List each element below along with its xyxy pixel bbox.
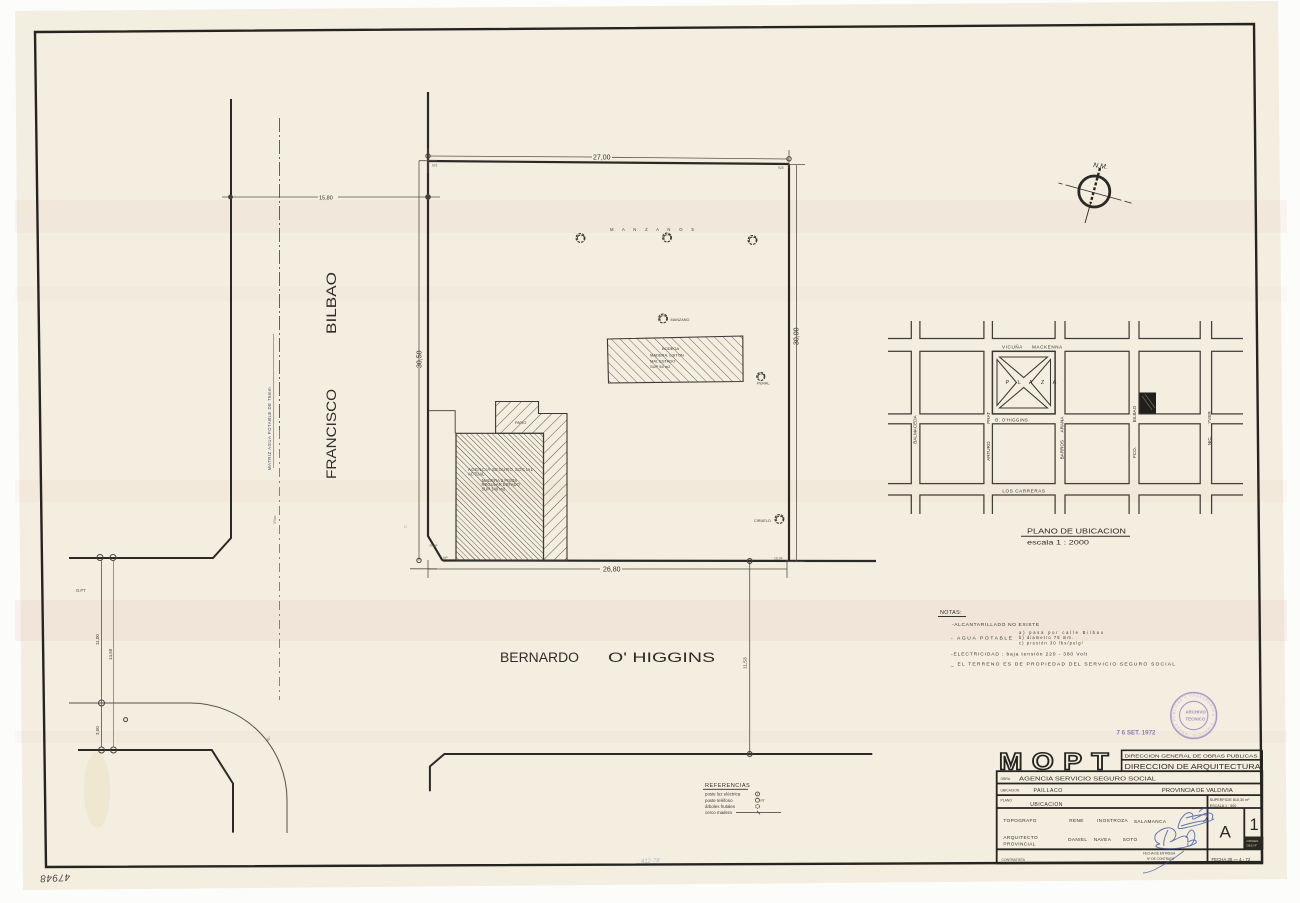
svg-text:CONTRATISTA: CONTRATISTA xyxy=(1002,858,1026,862)
svg-text:ORIGEN: ORIGEN xyxy=(1247,839,1259,843)
svg-text:AGENCIA SERVICIO SEGURO: AGENCIA SERVICIO SEGURO SOCIAL xyxy=(1019,777,1156,783)
svg-text:ARANA: ARANA xyxy=(1060,416,1065,433)
svg-text:SOTO: SOTO xyxy=(1123,837,1138,842)
svg-text:REFERENCIAS: REFERENCIAS xyxy=(705,783,750,789)
svg-text:BALMACEDA: BALMACEDA xyxy=(913,414,918,443)
svg-text:poste teléfono: poste teléfono xyxy=(705,798,733,803)
svg-text:15,80: 15,80 xyxy=(319,196,333,202)
svg-text:BILBAO: BILBAO xyxy=(1132,405,1137,422)
svg-text:R.OF: R.OF xyxy=(430,544,438,548)
svg-text:PATIO: PATIO xyxy=(515,420,526,425)
svg-text:FECHA 30 — 4 - 72: FECHA 30 — 4 - 72 xyxy=(1212,857,1251,862)
svg-text:BODEGA: BODEGA xyxy=(662,346,679,351)
svg-text:926: 926 xyxy=(778,166,784,170)
svg-text:ARCHIVO: ARCHIVO xyxy=(1186,710,1207,715)
svg-text:P L A Z A: P L A Z A xyxy=(1006,380,1060,386)
svg-text:FECHA DE ENTREGA: FECHA DE ENTREGA xyxy=(1143,852,1176,856)
svg-text:cerco madera: cerco madera xyxy=(705,810,732,815)
svg-text:FCO.: FCO. xyxy=(1132,447,1137,458)
svg-text:16,04: 16,04 xyxy=(774,557,783,561)
svg-text:c) presión 30 lbs/pulg²: c) presión 30 lbs/pulg² xyxy=(1019,640,1084,645)
svg-text:MAL ESTADO: MAL ESTADO xyxy=(650,359,675,364)
svg-text:ESCALA 1 : 500: ESCALA 1 : 500 xyxy=(1210,804,1237,808)
svg-text:PRAT: PRAT xyxy=(986,412,991,424)
svg-text:PAILLACO: PAILLACO xyxy=(1034,788,1063,794)
svg-text:MACKENNA: MACKENNA xyxy=(1032,345,1063,350)
svg-text:árboles frutales: árboles frutales xyxy=(705,804,736,809)
svg-text:3,50: 3,50 xyxy=(95,726,100,735)
svg-text:DANIEL: DANIEL xyxy=(1068,837,1087,842)
svg-text:11,53: 11,53 xyxy=(743,657,749,669)
svg-text:ARTURO: ARTURO xyxy=(986,441,991,461)
svg-text:PLANO: PLANO xyxy=(1001,799,1013,803)
svg-text:PROVINCIAL: PROVINCIAL xyxy=(1003,841,1035,846)
svg-text:YVER: YVER xyxy=(1207,411,1212,424)
svg-text:27,00: 27,00 xyxy=(593,155,611,162)
svg-text:BERNARDO: BERNARDO xyxy=(500,650,579,665)
svg-text:PERAL: PERAL xyxy=(757,382,769,386)
svg-text:-ALCANTARILLADO NO EXIST: -ALCANTARILLADO NO EXISTE xyxy=(952,622,1040,628)
svg-text:3°/oo: 3°/oo xyxy=(273,516,277,524)
svg-text:MATRIZ AGUA POTABLE DE: MATRIZ AGUA POTABLE DE 75mm xyxy=(267,387,272,470)
svg-text:OBRA: OBRA xyxy=(1001,777,1011,781)
svg-text:1: 1 xyxy=(1250,816,1259,834)
svg-text:30,00: 30,00 xyxy=(794,327,801,345)
svg-text:LOS CARRERAS: LOS CARRERAS xyxy=(1002,489,1045,494)
svg-text:_ EL TERRENO ES DE PROP: _ EL TERRENO ES DE PROPIEDAD DEL SERVICI… xyxy=(950,662,1175,668)
svg-text:BILBAO: BILBAO xyxy=(323,272,339,334)
svg-text:TOPOGRAFO: TOPOGRAFO xyxy=(1003,818,1036,823)
svg-text:INOSTROZA: INOSTROZA xyxy=(1097,818,1128,823)
svg-text:14,50: 14,50 xyxy=(108,648,113,660)
svg-text:FRANCISCO: FRANCISCO xyxy=(323,389,339,479)
svg-text:30,50: 30,50 xyxy=(417,350,424,368)
svg-text:MADERA, LISTON: MADERA, LISTON xyxy=(650,353,684,358)
svg-text:O.PT: O.PT xyxy=(76,588,86,593)
svg-text:SUP 54 m2: SUP 54 m2 xyxy=(650,364,671,369)
svg-text:MANZANO: MANZANO xyxy=(671,318,690,322)
svg-text:SUP 140 m2: SUP 140 m2 xyxy=(482,486,506,491)
svg-text:RENE: RENE xyxy=(1069,818,1084,823)
svg-text:M A N Z A N O S: M A N Z A N O S xyxy=(610,227,694,232)
svg-text:escala 1 : 2000: escala 1 : 2000 xyxy=(1027,540,1090,547)
svg-text:7 6 SET. 1972: 7 6 SET. 1972 xyxy=(1117,730,1156,737)
svg-text:SALAMANCA: SALAMANCA xyxy=(1134,819,1167,824)
svg-text:NAVEA: NAVEA xyxy=(1094,837,1112,842)
svg-text:NIC.: NIC. xyxy=(1207,436,1212,445)
svg-text:DIRECCION DE ARQUITECTURA: DIRECCION DE ARQUITECTURA xyxy=(1125,764,1261,771)
svg-text:UBICACION: UBICACION xyxy=(1030,802,1063,808)
svg-text:BARROS: BARROS xyxy=(1060,440,1065,459)
svg-text:ARQUITECTO: ARQUITECTO xyxy=(1003,835,1038,840)
svg-text:TECNICO: TECNICO xyxy=(1186,717,1206,722)
svg-text:412-78: 412-78 xyxy=(641,858,661,865)
svg-text:DIRECCION GENERAL DE OBRAS: DIRECCION GENERAL DE OBRAS PUBLICAS xyxy=(1125,754,1258,759)
svg-text:PROVINCIA DE VALDIVIA: PROVINCIA DE VALDIVIA xyxy=(1162,788,1234,794)
svg-text:O' HIGGINS: O' HIGGINS xyxy=(608,650,715,665)
svg-text:B. O'HIGGINS: B. O'HIGGINS xyxy=(995,418,1028,423)
svg-text:26,80: 26,80 xyxy=(603,567,621,574)
svg-text:PT: PT xyxy=(761,799,765,803)
svg-text:DES Nº: DES Nº xyxy=(1247,844,1258,848)
svg-text:A: A xyxy=(1220,823,1232,842)
svg-text:VICUÑA: VICUÑA xyxy=(1002,344,1023,350)
svg-text:CIRUELO: CIRUELO xyxy=(754,519,771,523)
svg-text:PLANO DE UBICACION: PLANO DE UBICACION xyxy=(1027,529,1126,536)
svg-text:11,00: 11,00 xyxy=(95,634,100,645)
svg-text:SUPERFICIE 810,30 m²: SUPERFICIE 810,30 m² xyxy=(1210,798,1251,802)
svg-text:b) diametro 75 mm.: b) diametro 75 mm. xyxy=(1019,635,1073,640)
svg-text:NP: NP xyxy=(443,556,448,560)
svg-text:NOTAS:: NOTAS: xyxy=(940,610,962,616)
svg-text:47948: 47948 xyxy=(40,871,71,884)
svg-text:poste luz eléctrica: poste luz eléctrica xyxy=(705,792,741,797)
svg-text:UBICACION: UBICACION xyxy=(1001,788,1020,792)
svg-text:-ELECTRICIDAD : baja tensión: -ELECTRICIDAD : baja tensión 220 - 380 V… xyxy=(951,652,1088,658)
svg-text:ACTUAL: ACTUAL xyxy=(468,471,485,476)
svg-text:921: 921 xyxy=(432,164,438,168)
